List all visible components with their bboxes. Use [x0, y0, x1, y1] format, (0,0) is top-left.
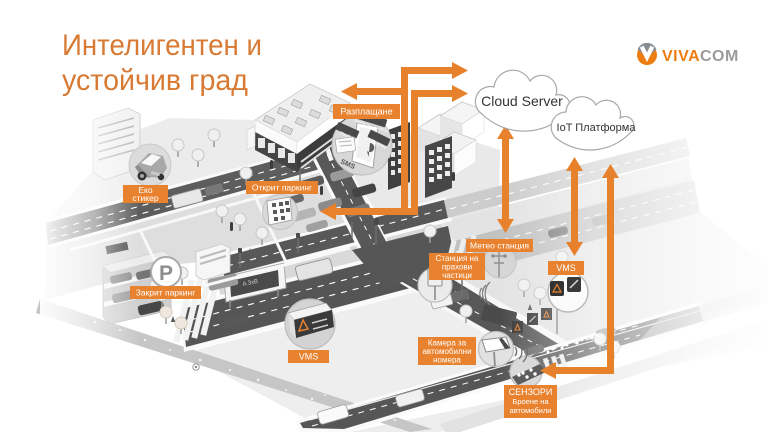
svg-text:устойчив град: устойчив град	[62, 64, 248, 97]
svg-text:VMS: VMS	[556, 263, 576, 273]
svg-text:частици: частици	[442, 271, 472, 280]
svg-text:Закрит паркинг: Закрит паркинг	[136, 288, 196, 298]
svg-text:СЕНЗОРИ: СЕНЗОРИ	[509, 387, 553, 397]
svg-text:VMS: VMS	[299, 352, 319, 362]
svg-text:номера: номера	[433, 356, 461, 365]
svg-text:P: P	[159, 262, 173, 285]
svg-text:VIVA: VIVA	[662, 48, 700, 65]
svg-text:автомобили: автомобили	[510, 406, 552, 415]
svg-text:стикер: стикер	[132, 193, 158, 203]
svg-text:COM: COM	[700, 48, 739, 65]
svg-text:Интелигентен и: Интелигентен и	[62, 29, 262, 62]
svg-text:Броене на: Броене на	[512, 397, 549, 406]
svg-text:Открит паркинг: Открит паркинг	[252, 183, 312, 193]
svg-text:Разплащане: Разплащане	[340, 107, 392, 117]
svg-text:IoT Платформа: IoT Платформа	[557, 122, 637, 134]
svg-text:Cloud Server: Cloud Server	[481, 93, 563, 109]
svg-text:Метео станция: Метео станция	[470, 241, 529, 251]
